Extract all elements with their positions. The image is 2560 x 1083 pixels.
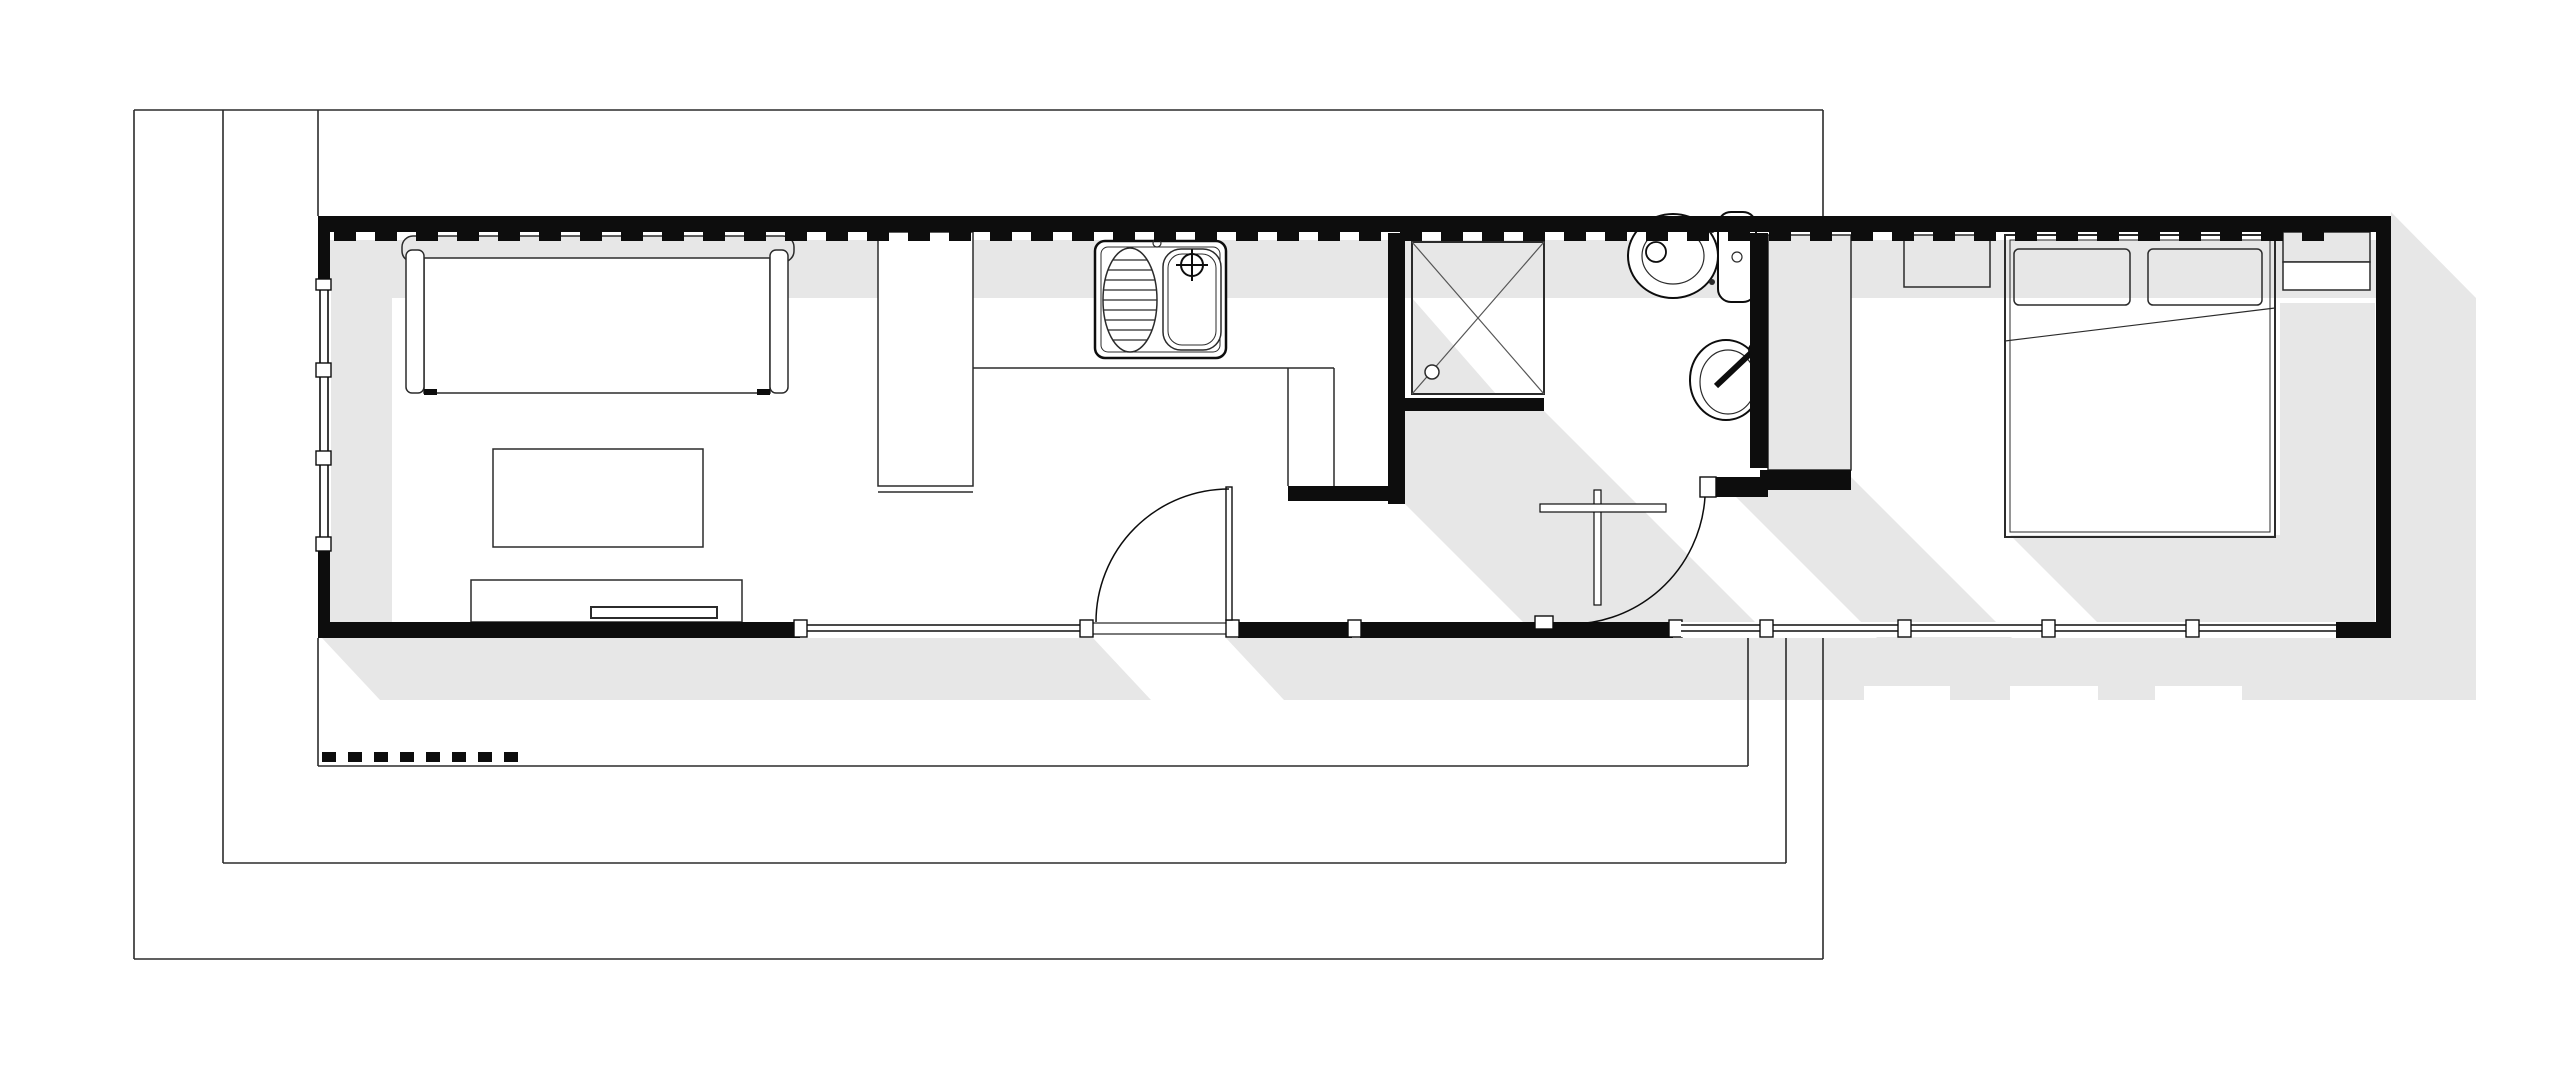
floor-plan-canvas: Container tiny-home floor plan: [0, 0, 2560, 1083]
wall-wardrobe-stub: [1760, 470, 1851, 490]
toilet-hinge-dot-2: [1709, 279, 1715, 285]
wall-top-corrugation-teeth-25: [1318, 232, 1340, 241]
deck-edge-dashes-1: [322, 752, 336, 762]
door-main-jamb-right: [1226, 620, 1239, 637]
bedroom-right-cabinet-lower: [2283, 262, 2370, 290]
wall-top-corrugation-teeth-17: [990, 232, 1012, 241]
bed-blanket-fold: [2005, 308, 2275, 341]
wall-top-corrugation-teeth-38: [1851, 232, 1873, 241]
deck-edge-dashes-7: [478, 752, 492, 762]
wall-top-corrugation-teeth-26: [1359, 232, 1381, 241]
wall-top-corrugation-teeth-22: [1195, 232, 1217, 241]
wall-top-corrugation-teeth-48: [2261, 232, 2283, 241]
wall-top-corrugation-teeth-10: [703, 232, 725, 241]
deck-edge-dashes-3: [374, 752, 388, 762]
wall-top-corrugation-teeth-14: [867, 232, 889, 241]
wall-top-corrugation-teeth-7: [580, 232, 602, 241]
window-left-glass-band: [317, 288, 331, 551]
shadow-bed-right-column: [2280, 303, 2375, 535]
window-left-post-2: [316, 363, 331, 377]
hall-threshold-horizontal: [1540, 504, 1666, 512]
light-notch-bedroom-2: [2010, 686, 2098, 700]
wall-kitchen-stub: [1288, 486, 1405, 501]
wall-top-corrugation-teeth-23: [1236, 232, 1258, 241]
window-bedroom-post-4: [2186, 620, 2199, 637]
wall-top-corrugation-teeth-12: [785, 232, 807, 241]
deck-edge-dashes-4: [400, 752, 414, 762]
window-bedroom-post-1: [1760, 620, 1773, 637]
wall-top-corrugation-teeth-30: [1523, 232, 1545, 241]
deck-edge-dashes-6: [452, 752, 466, 762]
wall-bottom-right-corner: [2336, 622, 2391, 638]
light-notch-bedroom-1: [1864, 686, 1950, 700]
window-bath-post: [1348, 620, 1361, 637]
wall-top-corrugation-teeth-36: [1769, 232, 1791, 241]
wall-top-corrugation-teeth-16: [949, 232, 971, 241]
bedroom-right-cabinet-upper: [2283, 232, 2370, 262]
door-main-leaf: [1226, 487, 1232, 620]
sofa-seat: [424, 258, 770, 393]
deck-edge-dashes-8: [504, 752, 518, 762]
wall-top-corrugation-teeth-4: [457, 232, 479, 241]
kitchen-tall-cabinet: [878, 232, 973, 486]
wall-top-corrugation-teeth-45: [2138, 232, 2160, 241]
window-bedroom-post-3: [2042, 620, 2055, 637]
bedroom-wardrobe: [1768, 235, 1851, 470]
wall-top-corrugation-teeth-13: [826, 232, 848, 241]
window-living-post: [794, 620, 807, 637]
wall-top-corrugation-teeth-1: [334, 232, 356, 241]
wall-top-corrugation-teeth-2: [375, 232, 397, 241]
sofa-foot-left: [424, 389, 437, 395]
wall-top: [318, 216, 2391, 232]
wall-top-corrugation-teeth-31: [1564, 232, 1586, 241]
shower-drain: [1425, 365, 1439, 379]
wall-top-corrugation-teeth-35: [1728, 232, 1750, 241]
light-notch-bedroom-3: [2155, 686, 2242, 700]
wall-top-corrugation-teeth-24: [1277, 232, 1299, 241]
window-left-post-1: [316, 279, 331, 290]
window-bedroom-post-2: [1898, 620, 1911, 637]
wall-right: [2376, 216, 2391, 638]
floor-plan-drawing: [0, 0, 2560, 1083]
wall-top-corrugation-teeth-49: [2302, 232, 2324, 241]
deck-edge-dashes-2: [348, 752, 362, 762]
wall-top-corrugation-teeth-8: [621, 232, 643, 241]
wall-top-corrugation-teeth-5: [498, 232, 520, 241]
door-main-jamb-left: [1080, 620, 1093, 637]
toilet-flush-blob: [1646, 242, 1666, 262]
wall-top-corrugation-teeth-34: [1687, 232, 1709, 241]
shadow-left-wall-band: [330, 240, 392, 622]
bedroom-wall-cabinet: [1904, 235, 1990, 287]
wall-top-corrugation-teeth-39: [1892, 232, 1914, 241]
wall-bath-bedroom-partition: [1750, 233, 1768, 468]
wall-top-corrugation-teeth-32: [1605, 232, 1627, 241]
wall-top-corrugation-teeth-19: [1072, 232, 1094, 241]
wall-top-corrugation-teeth-21: [1154, 232, 1176, 241]
window-left-post-3: [316, 451, 331, 465]
wall-top-corrugation-teeth-6: [539, 232, 561, 241]
window-bedroom-post-0: [1669, 620, 1682, 637]
wall-top-corrugation-teeth-9: [662, 232, 684, 241]
shadow-under-bed: [2010, 535, 2375, 622]
wall-top-corrugation-teeth-20: [1113, 232, 1135, 241]
tv-screen: [591, 607, 717, 618]
wall-top-corrugation-teeth-46: [2179, 232, 2201, 241]
wall-top-corrugation-teeth-33: [1646, 232, 1668, 241]
wall-top-corrugation-teeth-41: [1974, 232, 1996, 241]
wall-top-corrugation-teeth-44: [2097, 232, 2119, 241]
wall-top-corrugation-teeth-11: [744, 232, 766, 241]
wall-top-corrugation-teeth-47: [2220, 232, 2242, 241]
window-left-post-4: [316, 537, 331, 551]
wall-shower-south: [1388, 398, 1544, 411]
deck-edge-dashes-5: [426, 752, 440, 762]
coffee-table: [493, 449, 703, 547]
wall-top-corrugation-teeth-43: [2056, 232, 2078, 241]
sofa-foot-right: [757, 389, 770, 395]
sofa-armrest-left: [406, 250, 424, 393]
shadow-exterior-right: [2391, 212, 2476, 700]
door-bath-jamb: [1700, 477, 1716, 497]
wall-top-corrugation-teeth-3: [416, 232, 438, 241]
wall-top-corrugation-teeth-18: [1031, 232, 1053, 241]
wall-bottom-entry-right: [1238, 622, 1352, 638]
wall-top-corrugation-teeth-37: [1810, 232, 1832, 241]
wall-bottom-bath: [1360, 622, 1673, 638]
sofa-armrest-right: [770, 250, 788, 393]
wall-top-corrugation-teeth-42: [2015, 232, 2037, 241]
wall-bottom-living: [318, 622, 800, 638]
door-bath-hinge-block: [1535, 616, 1553, 629]
wall-top-corrugation-teeth-15: [908, 232, 930, 241]
wall-top-corrugation-teeth-29: [1482, 232, 1504, 241]
wall-top-corrugation-teeth-28: [1441, 232, 1463, 241]
wall-shower-left: [1388, 233, 1405, 504]
door-main-swing-arc: [1096, 489, 1229, 622]
wall-top-corrugation-teeth-40: [1933, 232, 1955, 241]
